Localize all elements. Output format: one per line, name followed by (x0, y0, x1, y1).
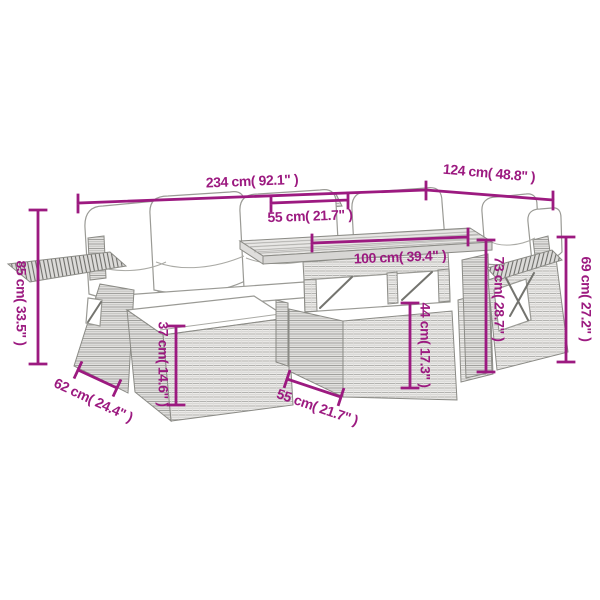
dim-label: 37 cm( 14.6" ) (155, 321, 171, 406)
table-base-front (343, 311, 457, 400)
dim-label: 234 cm( 92.1" ) (205, 171, 298, 191)
frame-strip (276, 300, 288, 366)
middle-frame-strip (276, 300, 288, 366)
back-pillow (150, 192, 247, 294)
left-arm-column (74, 284, 134, 393)
diagram-canvas: 234 cm( 92.1" ) 124 cm( 48.8" ) 55 cm( 2… (0, 0, 600, 600)
arm-post (462, 254, 492, 378)
dim-label: 55 cm( 21.7" ) (267, 206, 353, 225)
dim-label: 73 cm( 28.7" ) (491, 256, 507, 341)
dim-overall-height: 85 cm( 33.5" ) (13, 210, 46, 364)
arm-column (74, 284, 134, 393)
dim-line (30, 210, 46, 364)
dim-label: 124 cm( 48.8" ) (442, 161, 536, 185)
furniture-dimension-diagram: 234 cm( 92.1" ) 124 cm( 48.8" ) 55 cm( 2… (0, 0, 600, 600)
dim-label: 69 cm( 27.2" ) (578, 256, 594, 341)
dim-label: 85 cm( 33.5" ) (13, 260, 29, 345)
dim-label: 44 cm( 17.3" ) (417, 302, 433, 387)
footstool (127, 296, 293, 421)
